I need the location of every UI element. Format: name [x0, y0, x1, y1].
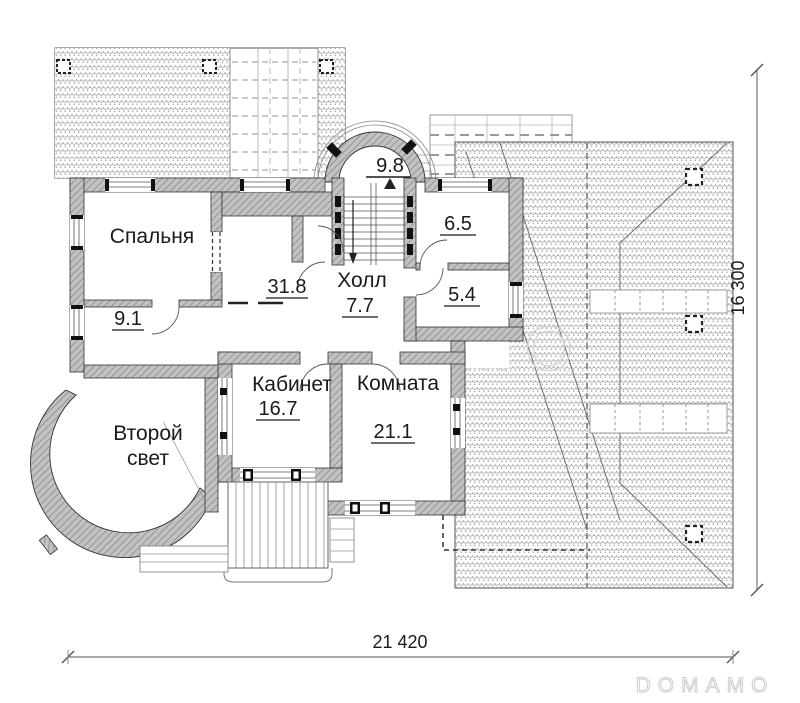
- dimension-height: 16 300: [728, 260, 748, 315]
- watermark-corner: DOMAMO: [636, 674, 775, 697]
- room-area-9-1: 9.1: [114, 308, 142, 330]
- room-label-hall: Холл: [337, 269, 387, 292]
- room-area-office: 16.7: [259, 398, 298, 420]
- roof-top-left: [55, 48, 345, 178]
- room-area-room: 21.1: [374, 421, 413, 443]
- room-label-second-light-1: Второй: [113, 422, 182, 445]
- room-label-second-light-2: свет: [127, 447, 169, 470]
- room-label-office: Кабинет: [252, 373, 332, 396]
- room-area-5-4: 5.4: [448, 284, 476, 306]
- floor-plan-canvas: DOMAMO: [0, 0, 800, 703]
- room-area-6-5: 6.5: [444, 213, 472, 235]
- room-label-room: Комната: [357, 372, 440, 395]
- room-label-bedroom: Спальня: [110, 225, 194, 248]
- dimension-width: 21 420: [372, 632, 427, 652]
- room-area-31-8: 31.8: [268, 276, 307, 298]
- room-area-9-8: 9.8: [376, 155, 404, 177]
- room-area-hall: 7.7: [346, 295, 374, 317]
